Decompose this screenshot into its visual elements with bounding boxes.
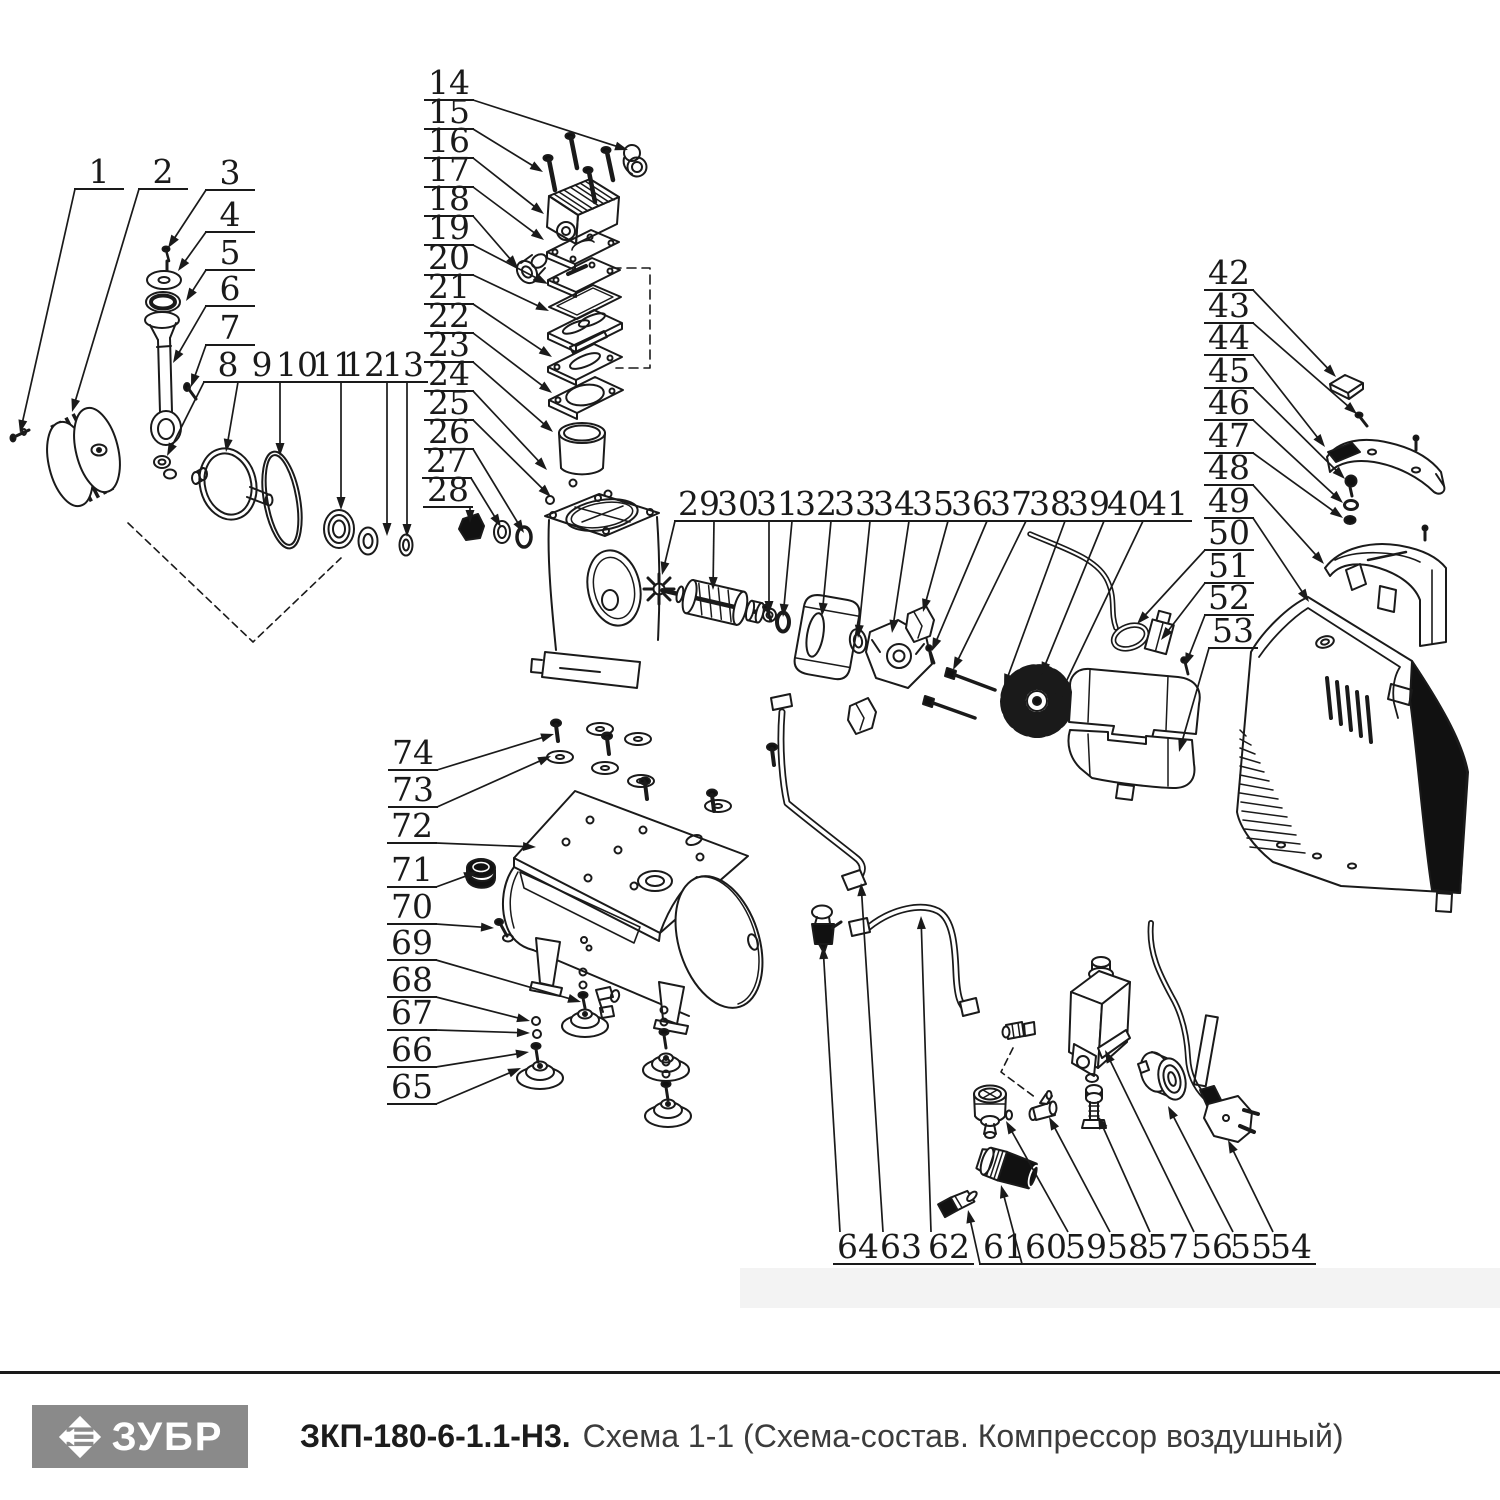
part-callout-64: 64 [819, 946, 883, 1266]
part-callout-13: 13 [378, 345, 428, 537]
part-number-29: 29 [678, 484, 720, 523]
part-number-8: 8 [218, 345, 239, 384]
dashed-group-bracket [612, 268, 650, 368]
leader-arrowhead-6 [173, 349, 183, 363]
leader-line-1 [22, 189, 75, 423]
leader-line-73 [437, 760, 542, 807]
leader-arrowhead-22 [539, 382, 552, 393]
leader-line-18 [473, 216, 511, 260]
part-number-34: 34 [873, 484, 915, 523]
part-number-60: 60 [1025, 1227, 1067, 1266]
leader-arrowhead-3 [168, 235, 179, 248]
part-number-1: 1 [89, 152, 110, 191]
part-number-72: 72 [391, 806, 433, 845]
leader-line-68 [436, 997, 520, 1019]
leader-line-27 [471, 478, 496, 518]
air-tubes [771, 694, 979, 1016]
leader-line-4 [184, 232, 206, 263]
leader-arrowhead-62 [917, 916, 926, 929]
part-callout-8: 8 [167, 345, 253, 456]
part-callout-66: 66 [387, 1030, 529, 1069]
leader-line-3 [173, 190, 206, 240]
tank-assembly [467, 791, 778, 1127]
leader-arrowhead-5 [186, 288, 197, 301]
leader-line-52 [1189, 615, 1205, 657]
leader-arrowhead-74 [540, 734, 554, 743]
leader-line-16 [473, 158, 536, 208]
part-callout-65: 65 [387, 1067, 521, 1106]
leader-arrowhead-2 [71, 398, 80, 412]
pulley-assembly [11, 403, 128, 511]
leader-line-20 [473, 275, 540, 307]
part-number-54: 54 [1270, 1227, 1312, 1266]
leader-arrowhead-37 [932, 637, 941, 651]
leader-arrowhead-60 [1000, 1185, 1009, 1199]
leader-line-38 [957, 521, 1026, 661]
filter-cup-59 [974, 1086, 1012, 1139]
leader-arrowhead-44 [1313, 434, 1325, 447]
leader-line-74 [437, 737, 544, 770]
leader-line-26 [473, 449, 519, 524]
handle-upper-44 [1327, 440, 1444, 494]
leader-line-6 [178, 306, 206, 354]
leader-arrowhead-15 [530, 161, 543, 172]
leader-arrowhead-11 [337, 497, 346, 510]
leader-line-36 [926, 521, 948, 602]
leader-line-30 [713, 521, 714, 580]
cooling-fan-40 [1013, 677, 1061, 725]
part-number-32: 32 [795, 484, 837, 523]
leader-line-72 [436, 843, 526, 847]
part-number-3: 3 [220, 153, 241, 192]
part-callout-71: 71 [387, 850, 477, 889]
leader-arrowhead-17 [531, 229, 544, 240]
pressure-gauge-55 [1136, 1049, 1190, 1103]
part-number-62: 62 [928, 1227, 970, 1266]
footer-title: ЗКП-180-6-1.1-Н3.Схема 1-1 (Схема-состав… [300, 1412, 1344, 1460]
part-number-9: 9 [252, 345, 273, 384]
leader-line-61 [970, 1220, 980, 1264]
part-number-68: 68 [391, 960, 433, 999]
part-number-74: 74 [392, 733, 434, 772]
leader-line-65 [436, 1072, 512, 1104]
leader-line-54 [1232, 1149, 1273, 1232]
part-number-37: 37 [990, 484, 1032, 523]
leader-arrowhead-7 [191, 373, 200, 387]
part-callout-3: 3 [168, 153, 255, 248]
leader-line-21 [473, 304, 544, 351]
gasket-plate-22 [548, 344, 622, 385]
part-number-38: 38 [1029, 484, 1071, 523]
diagram-page: 1234567891011121314151617181920212223242… [0, 0, 1500, 1500]
leader-line-7 [194, 345, 206, 378]
doc-subtitle: Схема 1-1 (Схема-состав. Компрессор возд… [583, 1418, 1344, 1454]
pressure-switch-group [937, 923, 1258, 1220]
leader-line-71 [436, 875, 468, 887]
drain-valve-64 [812, 906, 841, 954]
leader-line-34 [859, 521, 870, 628]
part-callout-6: 6 [173, 269, 255, 363]
leader-line-9 [228, 382, 238, 442]
power-cord-plug-54 [1151, 923, 1258, 1142]
part-number-65: 65 [391, 1067, 433, 1106]
part-callout-70: 70 [387, 887, 494, 932]
part-number-12: 12 [343, 345, 385, 384]
part-number-71: 71 [391, 850, 433, 889]
motor-assembly [644, 534, 1200, 800]
cylinder-sleeve-24 [559, 423, 605, 474]
leader-line-29 [664, 521, 675, 565]
leader-line-51 [1167, 583, 1205, 632]
part-number-57: 57 [1147, 1227, 1189, 1266]
part-number-66: 66 [391, 1030, 433, 1069]
part-callout-4: 4 [178, 195, 255, 271]
leader-line-39 [1007, 521, 1065, 678]
leader-line-58 [1054, 1126, 1110, 1232]
part-number-31: 31 [756, 484, 798, 523]
leader-arrowhead-10 [276, 443, 285, 456]
leader-arrowhead-58 [1049, 1117, 1059, 1131]
part-number-30: 30 [717, 484, 759, 523]
part-number-36: 36 [951, 484, 993, 523]
part-callout-61: 61 [966, 1210, 1029, 1266]
leader-line-57 [1102, 1125, 1150, 1232]
leader-arrowhead-29 [661, 561, 670, 575]
elbow-fitting-61 [937, 1187, 979, 1220]
leader-arrowhead-47 [1330, 507, 1343, 518]
leader-line-22 [473, 333, 544, 387]
leader-line-32 [784, 521, 792, 607]
leader-line-47 [1253, 453, 1335, 512]
leader-line-35 [894, 521, 909, 623]
leader-line-15 [473, 129, 534, 167]
part-number-64: 64 [837, 1227, 879, 1266]
leader-line-43 [1253, 323, 1349, 407]
crank-belt-assembly [128, 442, 413, 642]
nipple-fitting-58 [1003, 1022, 1036, 1039]
tank-drain-fitting-69 [596, 987, 620, 1018]
leader-line-70 [436, 924, 484, 927]
part-number-73: 73 [392, 770, 434, 809]
leader-line-62 [921, 926, 931, 1232]
leader-arrowhead-20 [535, 301, 549, 311]
part-number-40: 40 [1107, 484, 1149, 523]
leader-arrowhead-70 [481, 923, 494, 932]
part-number-39: 39 [1068, 484, 1110, 523]
leader-line-5 [191, 270, 206, 293]
leader-line-24 [473, 391, 540, 463]
leader-line-14 [473, 100, 618, 147]
doc-code: ЗКП-180-6-1.1-Н3. [300, 1418, 571, 1454]
leader-arrowhead-59 [1006, 1121, 1016, 1135]
leader-arrowhead-4 [178, 258, 189, 271]
part-callout-72: 72 [387, 806, 536, 851]
part-number-5: 5 [220, 233, 241, 272]
leader-arrowhead-12 [383, 523, 392, 536]
leader-arrowhead-66 [515, 1050, 529, 1059]
part-number-2: 2 [153, 152, 174, 191]
part-number-28: 28 [427, 470, 469, 509]
part-callout-63: 63 [857, 883, 926, 1266]
pressure-switch-56 [1069, 957, 1130, 1082]
part-number-55: 55 [1230, 1227, 1272, 1266]
part-number-56: 56 [1191, 1227, 1233, 1266]
footer: ЗУБР ЗКП-180-6-1.1-Н3.Схема 1-1 (Схема-с… [0, 1390, 1500, 1500]
part-number-61: 61 [983, 1227, 1025, 1266]
part-number-69: 69 [391, 923, 433, 962]
leader-arrowhead-38 [953, 656, 963, 670]
footer-separator-line [0, 1371, 1500, 1374]
leader-line-49 [1253, 518, 1303, 594]
zubr-logo: ЗУБР [32, 1405, 248, 1468]
part-number-59: 59 [1065, 1227, 1107, 1266]
leader-line-50 [1144, 550, 1205, 617]
part-number-41: 41 [1146, 484, 1188, 523]
page-gap-band [740, 1268, 1500, 1308]
part-callout-30: 30 [709, 484, 763, 590]
part-number-70: 70 [391, 887, 433, 926]
stator-33 [792, 593, 861, 682]
leader-arrowhead-67 [517, 1028, 530, 1037]
part-number-63: 63 [880, 1227, 922, 1266]
part-callout-28: 28 [423, 470, 475, 523]
leader-arrowhead-55 [1168, 1106, 1178, 1120]
valve-plate-21 [548, 310, 622, 353]
leader-line-67 [436, 1030, 520, 1033]
leader-arrowhead-14 [614, 142, 628, 151]
leader-line-2 [75, 189, 139, 402]
part-number-53: 53 [1212, 611, 1254, 650]
part-number-4: 4 [220, 195, 241, 234]
rotor-armature-30 [659, 574, 780, 633]
motor-housing-clamshells-53 [1068, 669, 1199, 800]
leader-line-63 [862, 893, 883, 1232]
valve-ball-25 [546, 496, 554, 504]
part-number-33: 33 [834, 484, 876, 523]
handle-parts [1325, 375, 1446, 646]
leader-arrowhead-61 [966, 1210, 975, 1224]
leader-arrowhead-21 [539, 346, 552, 357]
leader-line-66 [436, 1054, 519, 1067]
part-number-58: 58 [1107, 1227, 1149, 1266]
leader-line-42 [1253, 290, 1329, 370]
zubr-logo-text: ЗУБР [112, 1417, 224, 1457]
part-number-6: 6 [220, 269, 241, 308]
leader-line-48 [1253, 485, 1317, 557]
power-lead-wire-50 [1030, 534, 1150, 653]
leader-line-64 [824, 956, 840, 1232]
leader-line-33 [823, 521, 831, 606]
part-number-13: 13 [382, 345, 424, 384]
gasket-plate-23 [549, 377, 623, 419]
part-number-7: 7 [220, 308, 241, 347]
zubr-logo-icon [57, 1414, 103, 1460]
leader-line-23 [473, 362, 545, 425]
leader-arrowhead-68 [516, 1013, 530, 1022]
leader-arrowhead-52 [1185, 652, 1194, 666]
part-number-35: 35 [912, 484, 954, 523]
crankcase-assembly [459, 494, 659, 688]
leader-arrowhead-16 [531, 202, 544, 214]
